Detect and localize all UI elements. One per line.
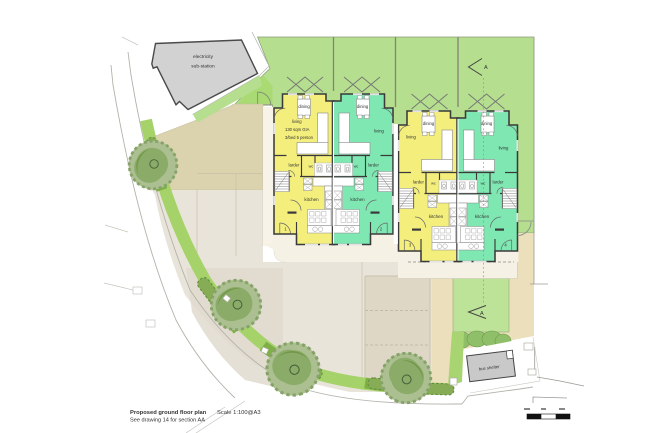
svg-text:sub-station: sub-station — [191, 64, 215, 70]
svg-text:Scale 1:100@A3: Scale 1:100@A3 — [217, 410, 261, 416]
svg-text:dining: dining — [298, 104, 310, 109]
svg-text:3/bed 5 person: 3/bed 5 person — [285, 135, 314, 140]
svg-text:larder: larder — [493, 180, 505, 185]
svg-text:wc: wc — [309, 165, 314, 169]
svg-text:130 sqm GIA: 130 sqm GIA — [285, 127, 310, 132]
svg-text:dining: dining — [423, 121, 435, 126]
svg-text:kitchen: kitchen — [304, 197, 319, 202]
svg-text:A: A — [484, 65, 488, 71]
svg-text:living: living — [374, 129, 384, 134]
svg-text:larder: larder — [289, 163, 301, 168]
svg-text:dining: dining — [357, 104, 369, 109]
svg-text:living: living — [406, 135, 416, 140]
svg-text:See drawing 14 for section AA: See drawing 14 for section AA — [130, 418, 205, 424]
svg-text:larder: larder — [368, 163, 380, 168]
svg-text:Proposed ground floor plan: Proposed ground floor plan — [130, 410, 207, 416]
svg-text:living: living — [499, 146, 509, 151]
svg-text:kitchen: kitchen — [429, 214, 444, 219]
svg-text:larder: larder — [413, 180, 425, 185]
svg-text:electricity: electricity — [193, 54, 214, 60]
svg-text:wc: wc — [354, 165, 359, 169]
svg-text:kitchen: kitchen — [350, 197, 365, 202]
svg-text:wc: wc — [481, 182, 486, 186]
svg-text:A: A — [480, 311, 484, 317]
svg-text:kitchen: kitchen — [475, 214, 490, 219]
svg-text:living: living — [292, 119, 302, 124]
svg-text:wc: wc — [431, 182, 436, 186]
svg-text:dining: dining — [481, 121, 493, 126]
